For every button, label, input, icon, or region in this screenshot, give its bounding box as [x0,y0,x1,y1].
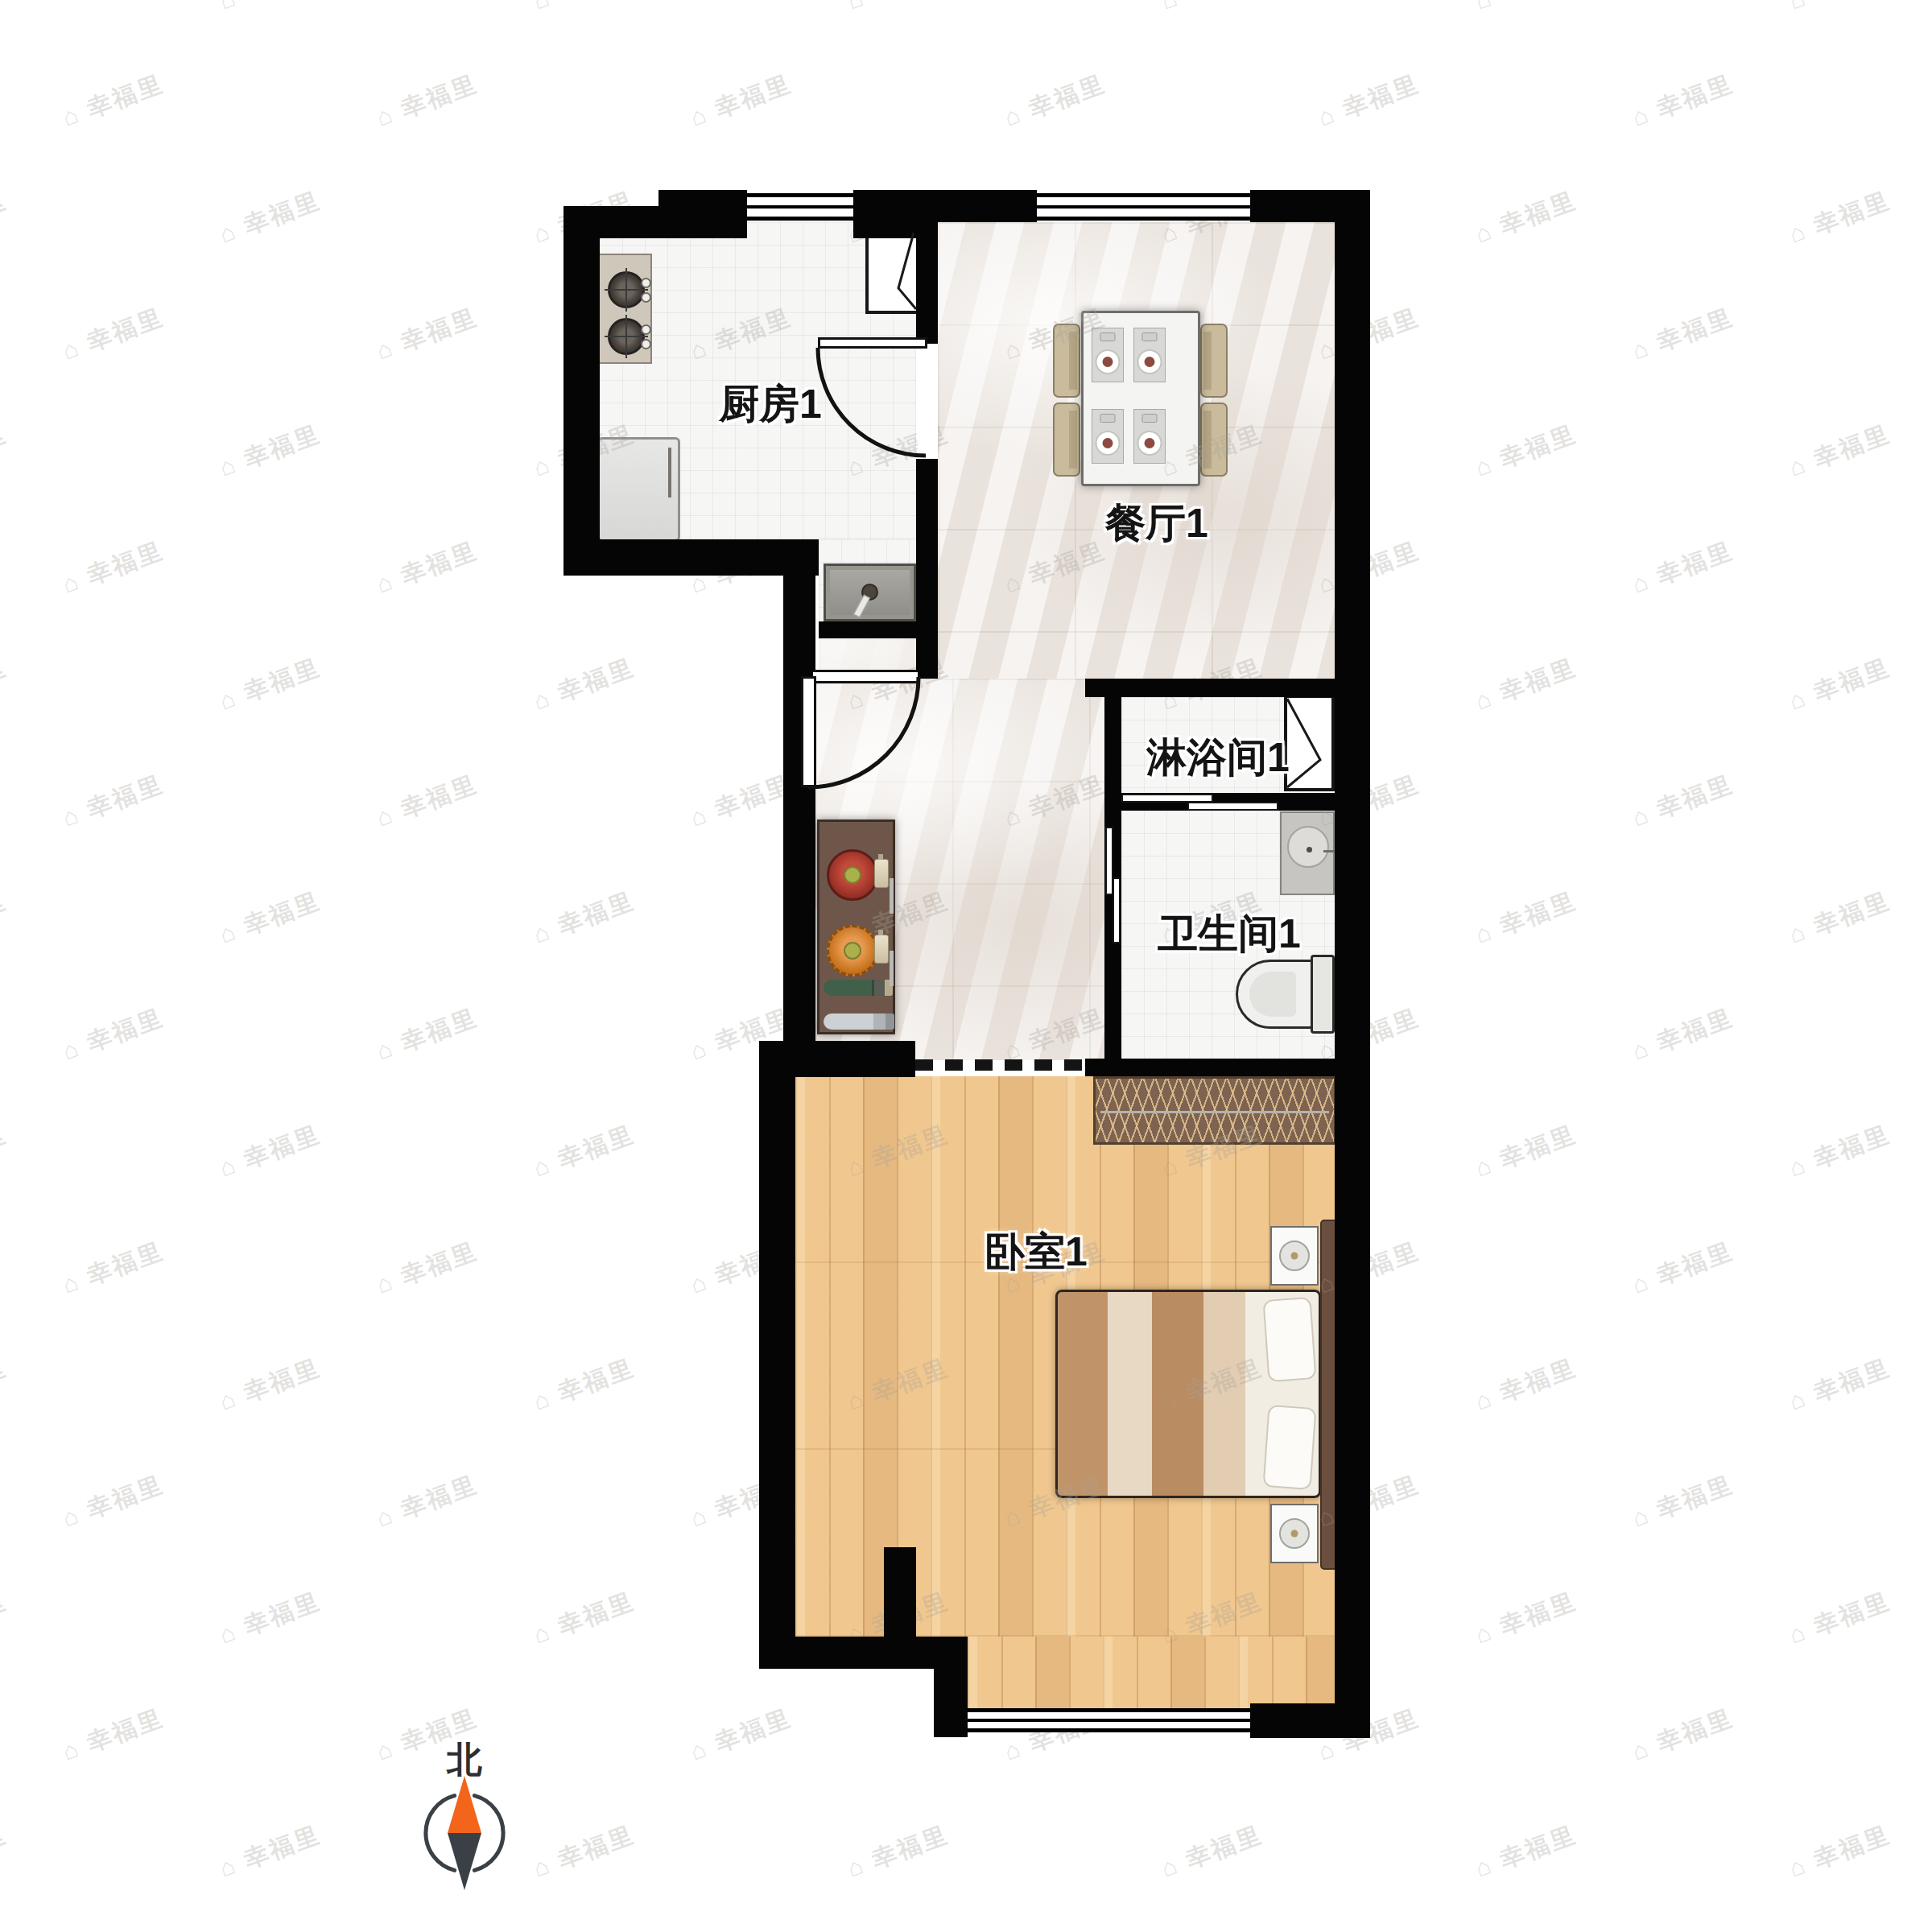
lamp-icon [1279,1241,1310,1271]
gas-stove [597,254,652,364]
stove-knob-icon [641,339,651,349]
room-label-bathroom: 卫生间1 [1158,907,1301,961]
cup-icon [1142,332,1158,341]
watermark-text: ⌂ 幸福里 [215,184,326,251]
wall-east [1335,190,1370,1738]
room-label-dining: 餐厅1 [1105,497,1208,551]
watermark-text: ⌂ 幸福里 [215,1352,326,1418]
watermark-text: ⌂ 幸福里 [0,1352,12,1418]
watermark-text: ⌂ 幸福里 [1785,1118,1896,1185]
watermark-text: ⌂ 幸福里 [1628,535,1739,601]
bedroom-open-passage [915,1059,1085,1071]
watermark-text: ⌂ 幸福里 [843,0,954,18]
watermark-text: ⌂ 幸福里 [1471,1118,1582,1185]
wine-bottle-icon [824,980,893,996]
watermark-text: ⌂ 幸福里 [0,885,12,952]
bathroom-sink [1280,811,1335,895]
floorplan-image: ⌂ 幸福里⌂ 幸福里⌂ 幸福里⌂ 幸福里⌂ 幸福里⌂ 幸福里⌂ 幸福里⌂ 幸福里… [0,0,1932,1932]
corridor-door-leaf [801,676,816,787]
watermark-text: ⌂ 幸福里 [215,885,326,952]
watermark-text: ⌂ 幸福里 [686,68,797,134]
wall-kitchen-west [563,206,600,576]
bedroom-floor-extension [968,1637,1335,1710]
watermark-text: ⌂ 幸福里 [1157,1818,1268,1885]
watermark-text: ⌂ 幸福里 [686,1702,797,1769]
refrigerator [597,437,680,542]
watermark-text: ⌂ 幸福里 [1628,1468,1739,1535]
watermark-text: ⌂ 幸福里 [0,184,12,251]
toilet [1236,960,1316,1029]
watermark-text: ⌂ 幸福里 [1785,1352,1896,1418]
watermark-text: ⌂ 幸福里 [1628,68,1739,134]
watermark-text: ⌂ 幸福里 [372,68,483,134]
kitchen-door-leaf [818,337,927,349]
stove-knob-icon [641,324,651,335]
watermark-text: ⌂ 幸福里 [529,885,640,952]
watermark-text: ⌂ 幸福里 [1471,184,1582,251]
watermark-text: ⌂ 幸福里 [0,651,12,718]
corridor-door-frame [813,670,918,683]
toilet-tank [1311,955,1335,1034]
wall-corridor-west [783,576,815,675]
watermark-text: ⌂ 幸福里 [529,0,640,18]
watermark-text: ⌂ 幸福里 [1785,1818,1896,1885]
bathroom-sliding-door [1113,877,1121,943]
decor-bowl-orange [827,925,878,976]
plate-icon [1137,431,1162,456]
watermark-text: ⌂ 幸福里 [1471,651,1582,718]
room-label-kitchen: 厨房1 [719,378,822,431]
watermark-text: ⌂ 幸福里 [58,301,169,368]
watermark-text: ⌂ 幸福里 [58,1702,169,1769]
wine-bottle-icon [824,1013,894,1030]
watermark-text: ⌂ 幸福里 [529,1118,640,1185]
shower-enclosure [1284,695,1335,791]
stove-burner-icon [608,271,645,308]
cup-icon [1100,332,1116,341]
lamp-icon [1279,1518,1310,1549]
watermark-text: ⌂ 幸福里 [0,1585,12,1652]
watermark-text: ⌂ 幸福里 [529,651,640,718]
cup-icon [1100,414,1116,423]
kitchen-sink [824,563,916,621]
place-setting [1092,328,1124,382]
decor-bowl-red [827,849,878,901]
wall-dining-south [1085,679,1335,697]
watermark-text: ⌂ 幸福里 [1628,1001,1739,1068]
compass-needle-south-icon [448,1833,481,1890]
bedroom-window [968,1708,1250,1732]
decor-bottle [874,935,889,964]
wall-corner-se [1250,1703,1370,1738]
drawer-handle-icon [890,878,894,914]
wall-notch [884,1547,916,1637]
watermark-text: ⌂ 幸福里 [1471,1352,1582,1418]
sink-faucet-icon [1323,850,1335,852]
wall-segment [853,190,922,238]
watermark-text: ⌂ 幸福里 [1785,418,1896,485]
sink-drain-icon [1307,847,1312,852]
watermark-text: ⌂ 幸福里 [1628,301,1739,368]
watermark-text: ⌂ 幸福里 [1000,68,1111,134]
watermark-text: ⌂ 幸福里 [1628,768,1739,835]
kitchen-window [747,193,853,221]
watermark-text: ⌂ 幸福里 [372,1468,483,1535]
watermark-text: ⌂ 幸福里 [1471,885,1582,952]
watermark-text: ⌂ 幸福里 [1471,1585,1582,1652]
watermark-text: ⌂ 幸福里 [0,1818,12,1885]
stove-knob-icon [641,278,651,288]
dining-chair [1053,402,1080,477]
decor-bottle [874,859,889,888]
watermark-text: ⌂ 幸福里 [686,768,797,835]
compass-needle-north-icon [448,1776,481,1833]
watermark-text: ⌂ 幸福里 [1471,0,1582,18]
watermark-text: ⌂ 幸福里 [529,1352,640,1418]
wall-segment [922,190,1037,222]
nightstand [1270,1504,1319,1563]
dining-window [1037,193,1250,221]
watermark-text: ⌂ 幸福里 [1785,885,1896,952]
dining-table [1081,311,1200,486]
plate-icon [1137,349,1162,374]
wall-kitchen-south [563,539,819,576]
place-setting [1092,409,1124,464]
watermark-text: ⌂ 幸福里 [1157,0,1268,18]
watermark-text: ⌂ 幸福里 [215,1585,326,1652]
compass-rose [426,1776,503,1890]
watermark-text: ⌂ 幸福里 [1471,418,1582,485]
watermark-text: ⌂ 幸福里 [0,418,12,485]
watermark-text: ⌂ 幸福里 [215,1818,326,1885]
compass-ring-icon [426,1796,455,1871]
watermark-text: ⌂ 幸福里 [58,1235,169,1302]
watermark-text: ⌂ 幸福里 [58,1468,169,1535]
watermark-text: ⌂ 幸福里 [1314,68,1425,134]
wall-step [934,1637,968,1737]
wall-bedroom-west [759,1041,795,1669]
stove-burner-icon [608,318,645,355]
watermark-text: ⌂ 幸福里 [58,68,169,134]
wall-segment [658,190,747,238]
watermark-text: ⌂ 幸福里 [1628,1702,1739,1769]
watermark-text: ⌂ 幸福里 [215,418,326,485]
dining-chair [1200,402,1228,477]
watermark-text: ⌂ 幸福里 [0,0,12,18]
watermark-text: ⌂ 幸福里 [372,1001,483,1068]
wall-shower-west [1104,679,1121,793]
nightstand [1270,1226,1319,1286]
wall-bedroom-south [759,1637,934,1669]
plate-icon [1096,431,1121,456]
watermark-text: ⌂ 幸福里 [372,1235,483,1302]
dining-chair [1200,324,1228,398]
double-bed [1055,1290,1321,1498]
watermark-text: ⌂ 幸福里 [58,768,169,835]
place-setting [1133,409,1166,464]
cup-icon [1142,414,1158,423]
watermark-text: ⌂ 幸福里 [529,1585,640,1652]
watermark-text: ⌂ 幸福里 [215,0,326,18]
compass-ring-icon [474,1796,503,1871]
room-label-shower: 淋浴间1 [1146,731,1290,785]
plate-icon [1096,349,1121,374]
watermark-text: ⌂ 幸福里 [1785,1585,1896,1652]
kitchen-cabinet [865,228,920,314]
watermark-text: ⌂ 幸福里 [1471,1818,1582,1885]
watermark-text: ⌂ 幸福里 [1785,184,1896,251]
kitchen-door-opening [918,344,938,456]
dining-chair [1053,324,1080,398]
compass-north-label: 北 [447,1736,482,1784]
watermark-text: ⌂ 幸福里 [372,301,483,368]
watermark-text: ⌂ 幸福里 [372,768,483,835]
wardrobe [1093,1076,1336,1145]
watermark-text: ⌂ 幸福里 [215,651,326,718]
wall-kitchen-dining-divider [916,222,938,344]
place-setting [1133,328,1166,382]
pillow-icon [1263,1405,1317,1490]
watermark-text: ⌂ 幸福里 [1628,1235,1739,1302]
watermark-text: ⌂ 幸福里 [0,1118,12,1185]
watermark-text: ⌂ 幸福里 [215,1118,326,1185]
watermark-text: ⌂ 幸福里 [843,1818,954,1885]
watermark-text: ⌂ 幸福里 [529,1818,640,1885]
wall-stub [916,638,938,679]
pillow-icon [1263,1297,1317,1382]
stove-knob-icon [641,292,651,303]
room-label-bedroom: 卧室1 [985,1225,1088,1279]
watermark-text: ⌂ 幸福里 [58,535,169,601]
watermark-text: ⌂ 幸福里 [1785,0,1896,18]
wall-bath-south [1085,1059,1335,1076]
watermark-text: ⌂ 幸福里 [58,1001,169,1068]
wall-kitchen-dining-divider [916,459,938,638]
shower-sliding-door [1187,802,1278,811]
drawer-handle-icon [890,951,894,986]
console-table [817,819,895,1034]
watermark-text: ⌂ 幸福里 [1785,651,1896,718]
watermark-text: ⌂ 幸福里 [372,535,483,601]
